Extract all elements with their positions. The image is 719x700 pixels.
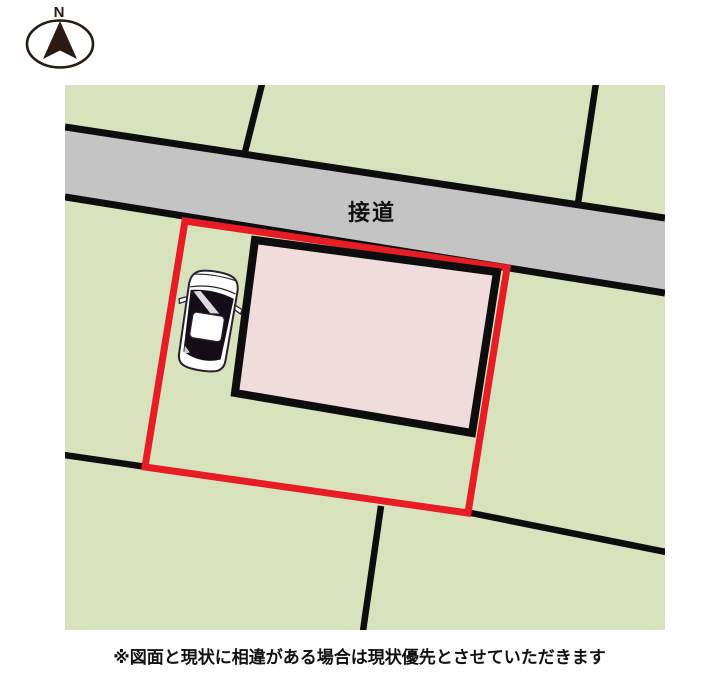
compass-n-label: N — [54, 4, 65, 21]
car-roof — [189, 312, 225, 343]
road-label: 接道 — [348, 200, 396, 225]
north-compass: N — [27, 4, 93, 68]
site-plan-drawing: N — [0, 0, 719, 700]
site-plan-page: N — [0, 0, 719, 700]
disclaimer-caption: ※図面と現状に相違がある場合は現状優先とさせていただきます — [0, 643, 719, 668]
